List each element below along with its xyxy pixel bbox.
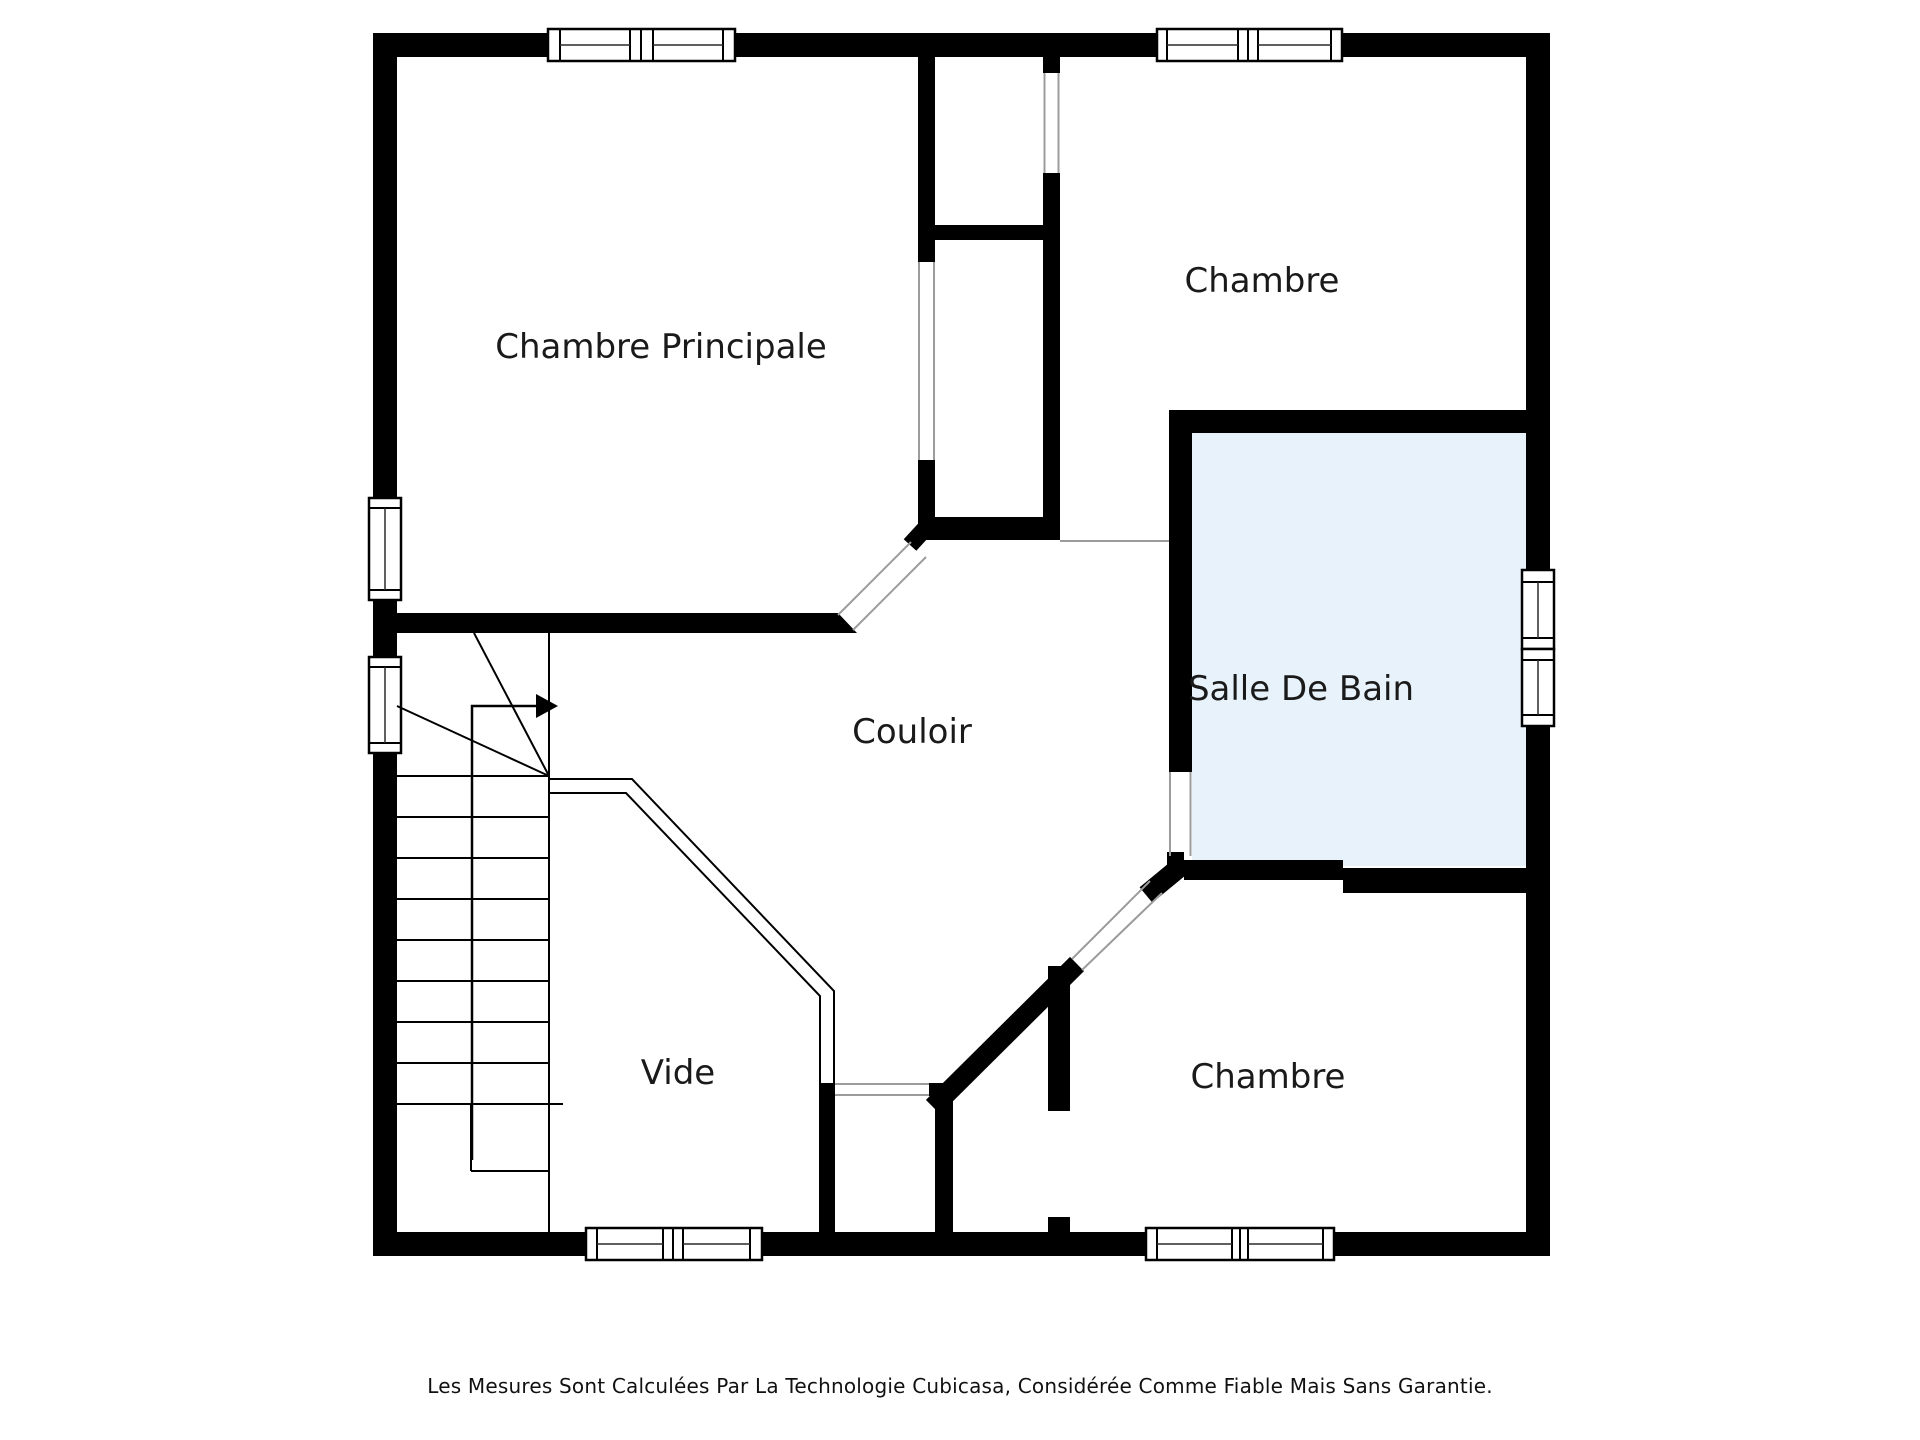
master-bedroom-south-wall [373,613,838,633]
window [586,1228,762,1260]
niche-wall [935,1096,953,1232]
window [1157,29,1342,61]
bedroom2-west-wall-stub [1048,1217,1070,1232]
room-label-vide: Vide [641,1053,715,1093]
window [548,29,735,61]
master-entry-opening [838,542,911,615]
bedroom2-entry-opening [1072,881,1150,959]
void-railing-line [549,793,820,1083]
outer-wall-left [373,33,397,1256]
closet-bottom-wall [935,225,1045,240]
staircase [397,633,834,1232]
closet-right-wall [1043,173,1060,517]
bathroom-left-wall [1169,410,1192,772]
bedroom2-top-wall [1343,868,1526,893]
room-label-chambre-bas: Chambre [1191,1057,1346,1097]
room-label-chambre-principale: Chambre Principale [495,327,827,367]
window [1146,1228,1334,1260]
window [369,498,401,600]
master-entry-opening [853,557,926,630]
closet-left-wall [918,57,935,262]
floor-plan: Chambre Principale Chambre Salle De Bain… [0,0,1920,1440]
measurement-disclaimer: Les Mesures Sont Calculées Par La Techno… [0,1374,1920,1398]
room-labels: Chambre Principale Chambre Salle De Bain… [495,261,1414,1097]
bedroom2-entry-opening [1082,893,1162,970]
void-east-wall [819,1083,835,1232]
niche-wall-cap [929,1083,953,1096]
floor-plan-svg: Chambre Principale Chambre Salle De Bain… [0,0,1920,1440]
closet-column-bottom-wall [935,517,1060,540]
void-railing-line [549,779,834,1083]
bedroom2-west-wall [1048,966,1070,1111]
window [1522,570,1554,649]
bathroom-floor-fill [1192,433,1526,866]
bathroom-top-wall [1169,410,1526,433]
room-label-couloir: Couloir [852,712,972,752]
bathroom-bottom-wall [1184,860,1343,880]
window [1522,649,1554,726]
window [369,657,401,753]
outer-wall-bottom [373,1232,1550,1256]
stair-direction-arrow [472,694,558,1160]
closet-right-wall-stub [1043,57,1060,73]
room-label-chambre-haut: Chambre [1185,261,1340,301]
room-label-salle-de-bain: Salle De Bain [1188,669,1414,709]
